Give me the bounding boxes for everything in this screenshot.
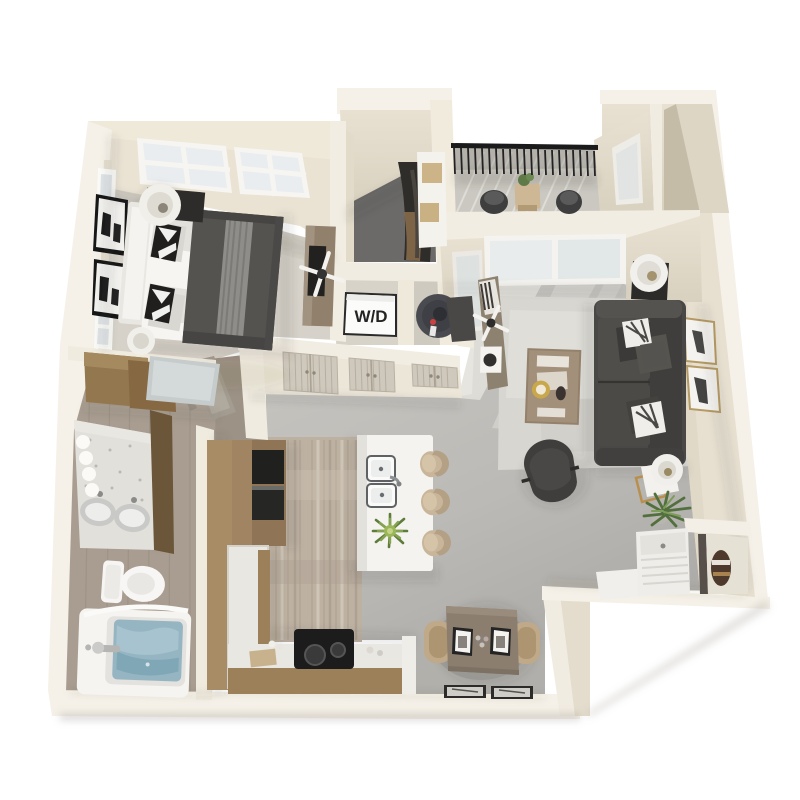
svg-text:W/D: W/D xyxy=(354,307,387,326)
